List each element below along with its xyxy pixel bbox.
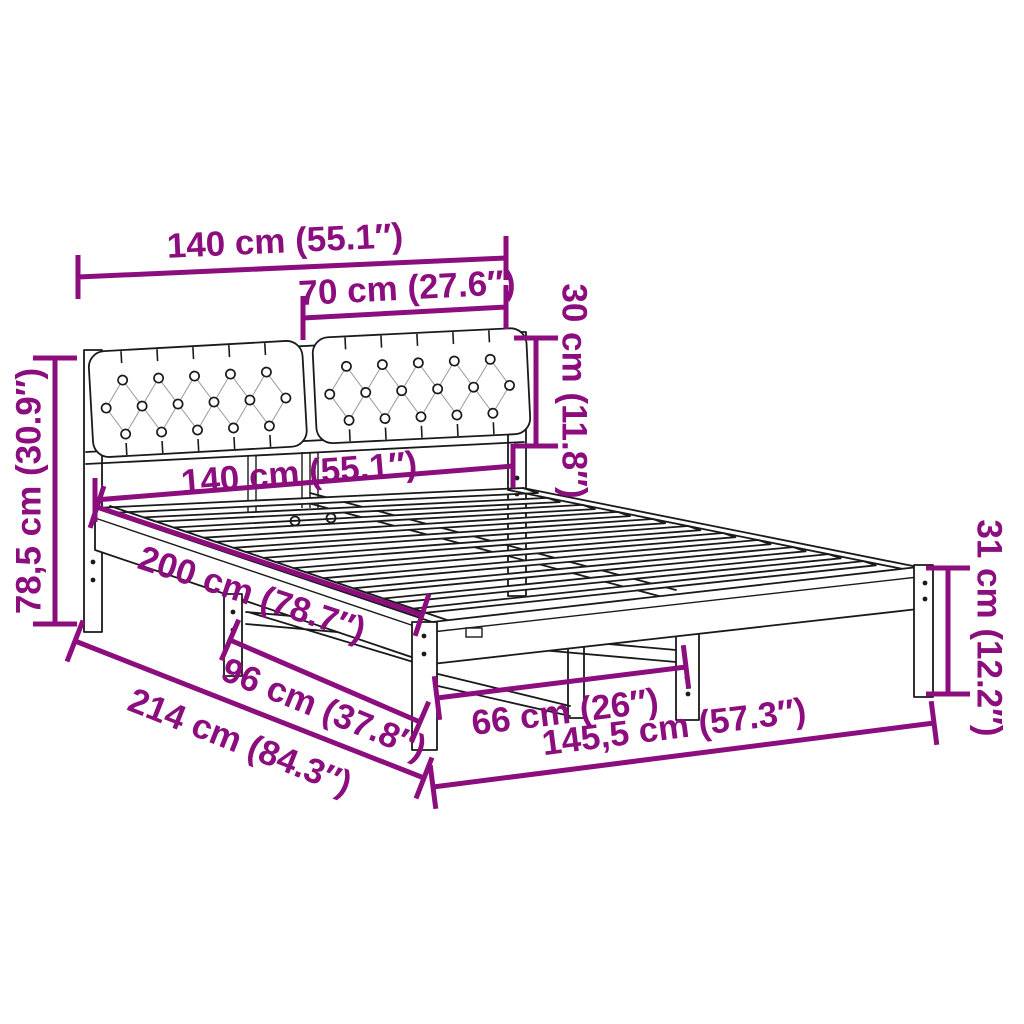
- tufting-button: [137, 401, 147, 411]
- tufting-button: [262, 367, 272, 377]
- bed-diagram-canvas: 140 cm (55.1″) 70 cm (27.6″) 30 cm (11.8…: [0, 0, 1024, 1024]
- dim-base-height: 31 cm (12.2″): [926, 519, 1009, 736]
- headboard-cushion-left: [88, 340, 308, 458]
- tufting-button: [344, 415, 354, 425]
- tufting-button: [281, 393, 291, 403]
- tufting-button: [342, 362, 352, 372]
- tufting-button: [226, 369, 236, 379]
- tufting-button: [154, 373, 164, 383]
- tufting-button: [325, 389, 335, 399]
- tufting-button: [505, 381, 515, 391]
- tufting-button: [449, 356, 459, 366]
- tufting-button: [190, 371, 200, 381]
- tufting-button: [101, 403, 111, 413]
- tufting-button: [157, 427, 167, 437]
- tufting-button: [173, 399, 183, 409]
- tufting-button: [245, 395, 255, 405]
- dim-cushion-width: 70 cm (27.6″): [298, 263, 517, 340]
- tufting-button: [118, 375, 128, 385]
- dim-cushion-height-label: 30 cm (11.8″): [555, 283, 594, 498]
- tufting-button: [361, 388, 371, 398]
- tufting-button: [397, 386, 407, 396]
- tufting-button: [469, 382, 479, 392]
- dim-total-height-label: 78,5 cm (30.9″): [10, 368, 49, 614]
- tufting-button: [121, 429, 131, 439]
- tufting-button: [414, 358, 424, 368]
- dim-headboard-width-label: 140 cm (55.1″): [166, 216, 404, 266]
- tufting-button: [452, 410, 462, 420]
- tufting-button: [416, 412, 426, 422]
- dim-mattress-width-label: 140 cm (55.1″): [179, 444, 418, 502]
- tufting-button: [378, 360, 388, 370]
- headboard-cushion-right: [312, 328, 531, 444]
- tufting-button: [265, 421, 275, 431]
- tufting-button: [209, 397, 219, 407]
- dim-cushion-width-label: 70 cm (27.6″): [298, 263, 517, 313]
- dimension-diagram: 140 cm (55.1″) 70 cm (27.6″) 30 cm (11.8…: [0, 0, 1024, 1024]
- tufting-button: [380, 414, 390, 424]
- tufting-button: [488, 408, 498, 418]
- tufting-button: [485, 354, 495, 364]
- dim-total-height: 78,5 cm (30.9″): [10, 358, 78, 624]
- tufting-button: [229, 423, 239, 433]
- tufting-button: [433, 384, 443, 394]
- tufting-button: [193, 425, 203, 435]
- dim-base-height-label: 31 cm (12.2″): [970, 519, 1009, 736]
